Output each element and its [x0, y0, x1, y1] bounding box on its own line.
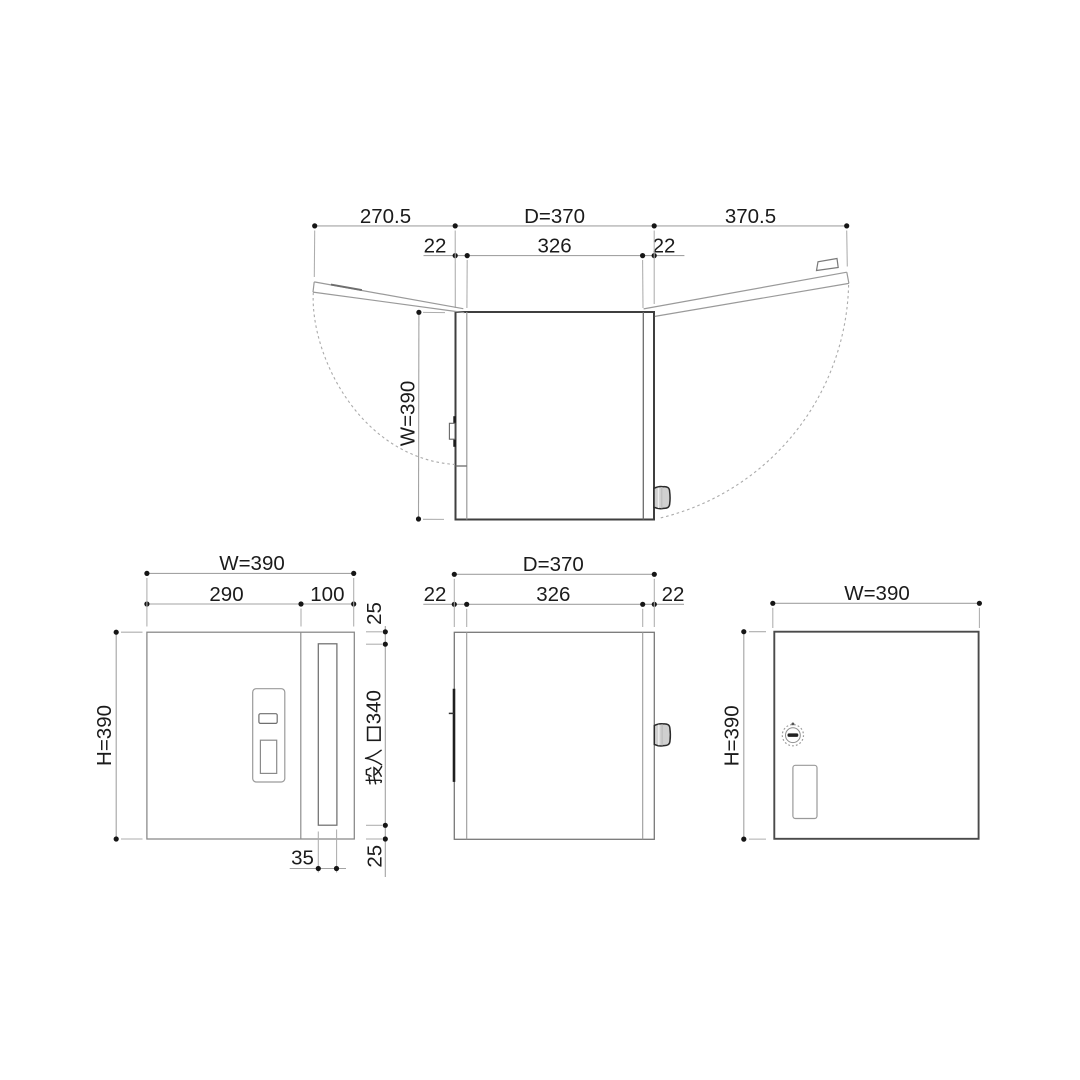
svg-text:W=390: W=390 — [219, 552, 285, 575]
svg-text:35: 35 — [291, 846, 314, 869]
svg-text:340: 340 — [363, 690, 386, 724]
svg-text:270.5: 270.5 — [360, 205, 411, 228]
svg-text:22: 22 — [424, 583, 447, 606]
svg-text:290: 290 — [209, 583, 243, 606]
svg-text:370.5: 370.5 — [725, 205, 776, 228]
svg-text:25: 25 — [363, 602, 386, 625]
svg-text:D=370: D=370 — [523, 553, 584, 576]
svg-text:W=390: W=390 — [397, 381, 420, 447]
svg-text:25: 25 — [364, 845, 387, 868]
svg-text:100: 100 — [310, 583, 344, 606]
svg-text:D=370: D=370 — [524, 205, 585, 228]
svg-text:22: 22 — [662, 583, 685, 606]
svg-text:326: 326 — [536, 583, 570, 606]
svg-text:W=390: W=390 — [844, 582, 910, 605]
svg-text:H=390: H=390 — [93, 705, 116, 766]
svg-text:22: 22 — [424, 234, 447, 257]
svg-text:22: 22 — [653, 234, 676, 257]
svg-text:326: 326 — [537, 234, 571, 257]
svg-text:H=390: H=390 — [721, 705, 744, 766]
